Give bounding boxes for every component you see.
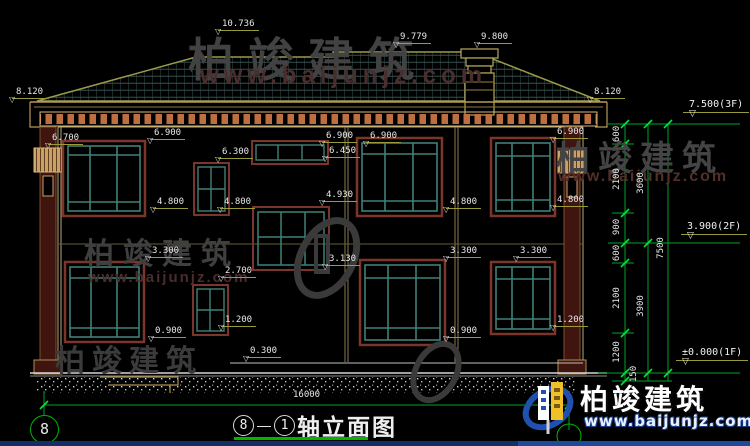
elev-label: 6.900▽ [366,131,401,143]
window [491,138,555,216]
window [491,262,555,334]
title-axis-start: 8 [233,415,254,436]
elev-label: 4.930▽ [322,190,357,202]
bottom-blue-bar [0,441,750,446]
elev-label: 9.800▽ [477,32,512,44]
vdim-label: 600 [612,245,622,261]
elev-label: 6.450▽ [325,146,360,158]
site-logo: 柏竣建筑 www.baijunjz.com [518,376,750,442]
watermark-brand: 柏竣建筑 [55,336,203,380]
cornice [30,102,607,127]
floor-label: 3.900(2F)▽ [681,221,747,235]
vdim-label: 2100 [612,287,622,309]
elev-label: 4.800▽ [553,195,588,207]
elev-label: 9.779▽ [396,32,431,44]
elev-label: 8.120▽ [12,87,47,99]
title-underline [234,437,368,440]
elev-label: 0.300▽ [246,346,281,358]
elev-label: 3.300▽ [148,246,183,258]
bottom-blue-bar-bright [518,441,750,446]
vdim-label: 3600 [636,172,646,194]
elev-label: 6.900▽ [553,127,588,139]
elev-label: 6.900▽ [150,128,185,140]
vdim-label: 3900 [636,295,646,317]
vdim-label: 600 [612,126,622,142]
window [252,141,328,164]
title-axis-separator: — [257,417,271,433]
elev-label: 4.800▽ [446,197,481,209]
axis-bubble-8: 8 [30,415,59,444]
window [360,260,445,345]
elev-label: 10.736▽ [218,19,259,31]
elev-label: 3.300▽ [516,246,551,258]
elev-label: 0.900▽ [151,326,186,338]
window [63,141,145,216]
elev-label: 1.200▽ [553,315,588,327]
elev-label: 4.800▽ [153,197,188,209]
elev-label: 6.300▽ [218,147,253,159]
vdim-label: 7500 [656,237,666,259]
total-width-dimension: 16000 [293,390,320,400]
vdim-label: 1200 [612,341,622,363]
logo-icon [518,376,580,438]
elev-label: 1.200▽ [221,315,256,327]
elev-label: 3.300▽ [446,246,481,258]
elev-label: 3.130▽ [325,254,360,266]
elev-label: 6.900▽ [322,131,357,143]
floor-label: 7.500(3F)▽ [683,99,749,113]
vdim-label: 900 [612,219,622,235]
elev-label: 2.700▽ [221,266,256,278]
title-axis-end: 1 [274,415,295,436]
elev-label: 8.120▽ [590,87,625,99]
vdim-label: 2100 [612,168,622,190]
logo-url: www.baijunjz.com [584,412,750,430]
elev-label: 0.900▽ [446,326,481,338]
floor-label: ±0.000(1F)▽ [676,347,748,361]
elev-label: 6.700▽ [48,133,83,145]
window [357,138,442,216]
cad-elevation-drawing: 柏竣建筑 www.baijunjz.com 柏竣建筑 www.baijunjz.… [0,0,750,446]
watermark-url: www.baijunjz.com [200,62,487,90]
elev-label: 4.800▽ [220,197,255,209]
